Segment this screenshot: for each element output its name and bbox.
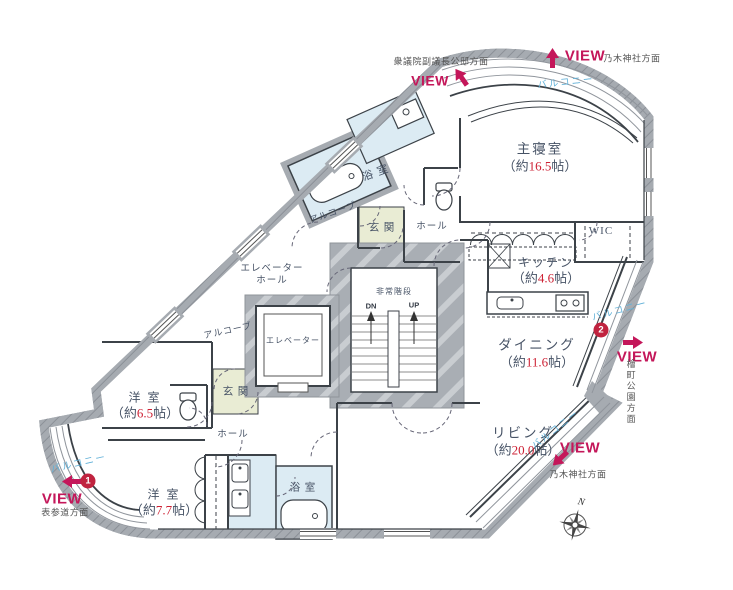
room-label-emergency-stairs: 非常階段 (376, 287, 412, 297)
view-bottom-left-direction: 表参道方面 (41, 507, 89, 518)
view-top-label: VIEW (565, 48, 605, 67)
room-label-hall-lower: ホール (217, 430, 249, 442)
room-label-western-6-5: 洋 室 （約6.5帖） (111, 390, 179, 421)
room-label-bathroom-lower: 浴 室 (290, 481, 317, 494)
view-right-direction: 檜町公園方面 (624, 359, 635, 425)
view-top-left-label: VIEW (411, 72, 449, 90)
room-label-entrance-lower: 玄 関 (223, 385, 250, 398)
view-right-label: VIEW (617, 349, 657, 368)
room-label-kitchen: キッチン （約4.6帖） (512, 255, 580, 286)
room-label-elevator: エレベーター (266, 336, 320, 346)
room-label-elevator-hall: エレベーター ホール (240, 264, 303, 288)
room-label-western-7-7: 洋 室 （約7.7帖） (130, 487, 198, 518)
view-top-direction: 乃木神社方面 (603, 53, 660, 64)
floor-plan: 主寝室 （約16.5帖） キッチン （約4.6帖） ダイニング （約11.6帖）… (0, 0, 733, 590)
room-label-master-bedroom: 主寝室 （約16.5帖） (503, 141, 578, 174)
view-marker-1: 1 (81, 474, 96, 489)
compass-icon (556, 506, 594, 544)
elevator-shaft (245, 295, 339, 397)
stairs-dn-label: DN (366, 301, 377, 310)
stairs-up-label: UP (409, 300, 419, 309)
view-top-left-direction: 衆議院副議長公邸方面 (393, 56, 488, 67)
view-marker-2: 2 (594, 323, 609, 338)
room-label-hall-upper: ホール (416, 222, 448, 234)
view-bottom-right-direction: 乃木神社方面 (549, 469, 606, 480)
view-arrow-up-icon (546, 46, 560, 68)
room-label-entrance-upper: 玄 関 (369, 221, 396, 234)
room-label-dining: ダイニング （約11.6帖） (498, 337, 576, 370)
room-label-wic: WIC (589, 225, 613, 239)
floor-plan-drawing (0, 0, 733, 590)
view-arrow-left-icon (60, 474, 82, 488)
